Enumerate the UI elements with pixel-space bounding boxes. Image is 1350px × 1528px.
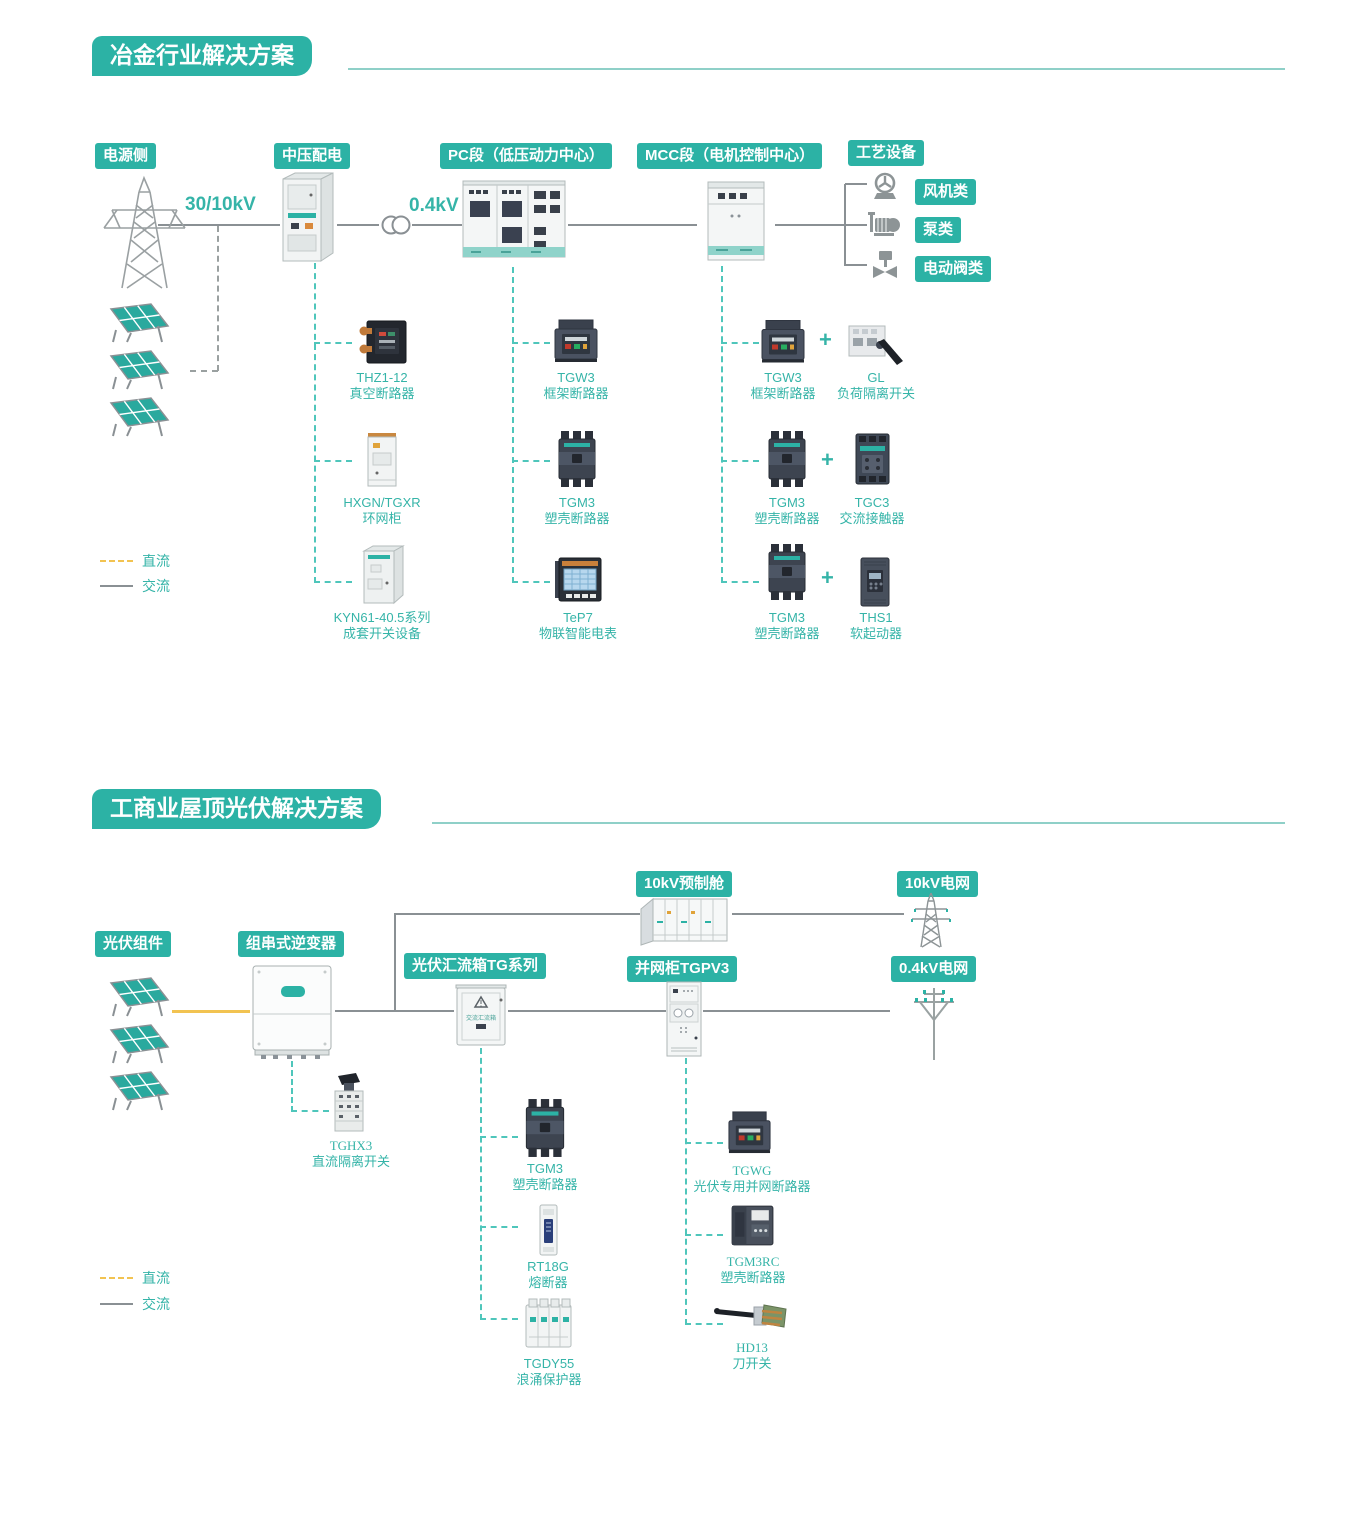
grid-products-connector [685, 1058, 687, 1325]
legend-dc-line [100, 1277, 133, 1279]
tgc3-contactor-image [852, 430, 893, 488]
product-label: HXGN/TGXR 环网柜 [343, 495, 420, 527]
fan-icon [869, 172, 899, 200]
utility-pole-icon [910, 982, 958, 1062]
transmission-tower-icon [92, 170, 197, 290]
kyn61-switchgear-image [359, 543, 406, 606]
product-label: TGDY55 浪涌保护器 [516, 1356, 581, 1388]
pump-icon [866, 210, 900, 238]
legend-dc-line [100, 560, 133, 562]
legend-ac-label: 交流 [142, 1294, 170, 1314]
mv-product-stub [314, 460, 352, 462]
ac-line-riser-to-prefab [394, 913, 640, 915]
grid-product-stub [685, 1234, 723, 1236]
tgw3-acb-image [759, 317, 807, 365]
product-label: RT18G 熔断器 [527, 1259, 569, 1291]
combiner-products-connector [480, 1048, 482, 1320]
legend-ac-line [100, 1303, 133, 1305]
combiner-product-stub [480, 1318, 518, 1320]
legend-ac-line [100, 585, 133, 587]
ac-line-cabinet-to-pole [703, 1010, 890, 1012]
product-label: TGWG 光伏专用并网断路器 [693, 1163, 810, 1195]
solar-panel-icon [98, 975, 170, 1017]
grid-product-stub [685, 1142, 723, 1144]
badge-mv-distribution: 中压配电 [274, 143, 350, 169]
product-label: TGW3 框架断路器 [750, 370, 815, 402]
equipment-stub-pump [845, 224, 867, 226]
product-label: TeP7 物联智能电表 [539, 610, 617, 642]
solar-panel-icon [98, 395, 170, 437]
product-label: TGC3 交流接触器 [839, 495, 904, 527]
legend-ac-label: 交流 [142, 576, 170, 596]
solar-panel-icon [98, 348, 170, 390]
tgw3-acb-image [552, 317, 600, 364]
plus-sign: + [821, 449, 834, 471]
ac-line-transformer-to-pc [412, 224, 462, 226]
pc-product-stub [512, 460, 550, 462]
mv-products-connector [314, 263, 316, 583]
tghx3-switch-image [328, 1072, 370, 1136]
badge-pump-type: 泵类 [915, 217, 961, 243]
equipment-stub-valve [845, 264, 867, 266]
mv-product-stub [314, 581, 352, 583]
dc-line-panels-to-inverter [172, 1010, 250, 1013]
badge-process-equipment: 工艺设备 [848, 140, 924, 166]
product-label: TGM3RC 塑壳断路器 [720, 1254, 785, 1286]
badge-pv-modules: 光伏组件 [95, 931, 171, 957]
valve-icon [869, 250, 899, 280]
mv-product-stub [314, 342, 352, 344]
string-inverter-image [249, 962, 335, 1061]
inverter-product-stub [291, 1110, 329, 1112]
plus-sign: + [819, 329, 832, 351]
product-label: TGHX3 直流隔离开关 [312, 1138, 390, 1170]
combiner-product-stub [480, 1136, 518, 1138]
voltage-label-0-4kv: 0.4kV [409, 195, 459, 217]
gl-switch-image [845, 321, 905, 367]
section2-header-underline [432, 822, 1285, 824]
equipment-stub-fan [845, 183, 867, 185]
section2-header: 工商业屋顶光伏解决方案 [92, 789, 381, 829]
badge-mcc-section: MCC段（电机控制中心） [637, 143, 822, 169]
rt18g-fuse-image [536, 1203, 561, 1257]
inverter-product-connector [291, 1061, 293, 1112]
pc-product-stub [512, 342, 550, 344]
combiner-product-stub [480, 1226, 518, 1228]
legend-dc-row: 直流 [100, 1268, 170, 1288]
combiner-face-text: 交流汇流箱 [466, 1013, 496, 1022]
solar-panel-icon [98, 1022, 170, 1064]
solar-panel-icon [98, 301, 170, 343]
hd13-knife-switch-image [711, 1299, 791, 1333]
legend-dc-label: 直流 [142, 1268, 170, 1288]
product-label: THZ1-12 真空断路器 [349, 370, 414, 402]
legend-ac-row: 交流 [100, 1294, 170, 1314]
pc-products-connector [512, 267, 514, 583]
tgwg-acb-image [726, 1107, 773, 1157]
product-label: GL 负荷隔离开关 [837, 370, 915, 402]
mcc-product-stub [721, 342, 759, 344]
section1-header: 冶金行业解决方案 [92, 36, 312, 76]
tgm3-mccb-image [522, 1098, 568, 1158]
prefab-cabin-image [637, 891, 732, 949]
legend-ac-row: 交流 [100, 576, 170, 596]
ac-line-pc-to-mcc [568, 224, 697, 226]
badge-string-inverter: 组串式逆变器 [238, 931, 344, 957]
ac-line-prefab-to-tower [732, 913, 904, 915]
ths1-soft-starter-image [857, 556, 893, 609]
badge-power-side: 电源侧 [95, 143, 156, 169]
mcc-product-stub [721, 581, 759, 583]
tgm3-mccb-image [556, 430, 598, 488]
product-label: HD13 刀开关 [732, 1340, 771, 1372]
solar-panel-icon [98, 1069, 170, 1111]
transformer-icon [378, 213, 414, 237]
dashed-branch-vertical [217, 226, 219, 371]
dashed-branch-horizontal [190, 370, 218, 372]
tgdy55-spd-image [524, 1297, 573, 1351]
ac-line-mv-to-transformer [337, 224, 379, 226]
tgm3-mccb-image [766, 430, 808, 488]
tgm3rc-mccb-image [729, 1200, 776, 1250]
mcc-product-stub [721, 460, 759, 462]
tgpv3-cabinet-image [665, 980, 703, 1058]
grid-tower-icon [909, 889, 955, 949]
ac-line-mcc-to-equipment [775, 224, 845, 226]
mcc-cabinet-image [696, 176, 775, 266]
hxgn-ring-cabinet-image [365, 431, 399, 488]
tgm3-mccb-image [766, 543, 808, 601]
product-label: TGM3 塑壳断路器 [512, 1161, 577, 1193]
product-label: THS1 软起动器 [850, 610, 902, 642]
catalog-page: 冶金行业解决方案 电源侧 中压配电 PC段（低压动力中心） MCC段（电机控制中… [0, 0, 1350, 1528]
product-label: KYN61-40.5系列 成套开关设备 [334, 610, 431, 642]
product-label: TGM3 塑壳断路器 [544, 495, 609, 527]
badge-valve-type: 电动阀类 [915, 256, 991, 282]
badge-grid-cabinet: 并网柜TGPV3 [627, 956, 737, 982]
legend-dc-label: 直流 [142, 551, 170, 571]
product-label: TGW3 框架断路器 [543, 370, 608, 402]
ac-riser-to-prefab [394, 914, 396, 1011]
badge-pc-section: PC段（低压动力中心） [440, 143, 612, 169]
product-label: TGM3 塑壳断路器 [754, 495, 819, 527]
tep7-meter-image [552, 555, 604, 604]
badge-combiner-box: 光伏汇流箱TG系列 [404, 953, 546, 979]
pc-product-stub [512, 581, 550, 583]
pc-cabinet-image [461, 175, 568, 267]
legend-dc-row: 直流 [100, 551, 170, 571]
mcc-products-connector [721, 266, 723, 583]
badge-fan-type: 风机类 [915, 179, 976, 205]
section1-header-underline [348, 68, 1285, 70]
ac-line-combiner-to-cabinet [508, 1010, 666, 1012]
badge-grid-04kv: 0.4kV电网 [891, 956, 976, 982]
mv-cabinet-image [279, 171, 337, 263]
product-label: TGM3 塑壳断路器 [754, 610, 819, 642]
thz1-12-breaker-image [355, 318, 409, 366]
plus-sign: + [821, 567, 834, 589]
